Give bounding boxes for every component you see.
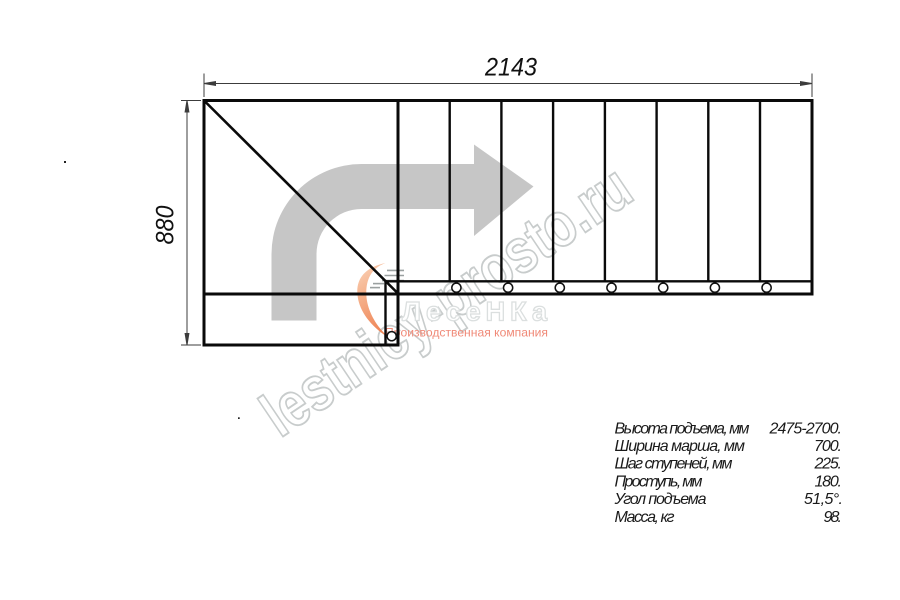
svg-text:98.: 98. [824, 509, 843, 526]
svg-text:880: 880 [152, 205, 180, 244]
svg-text:Производственная компания: Производственная компания [385, 326, 548, 340]
svg-text:2475-2700.: 2475-2700. [769, 420, 843, 437]
svg-text:180.: 180. [815, 473, 843, 490]
svg-text:Высота подъема, мм: Высота подъема, мм [615, 420, 750, 437]
svg-text:2143: 2143 [484, 54, 537, 82]
svg-text:Проступь, мм: Проступь, мм [615, 473, 703, 490]
svg-text:Шаг ступеней, мм: Шаг ступеней, мм [615, 456, 733, 473]
svg-text:225.: 225. [814, 456, 843, 473]
svg-text:Ширина марша, мм: Ширина марша, мм [615, 438, 746, 455]
svg-text:700.: 700. [814, 438, 842, 455]
svg-text:Угол подъема: Угол подъема [614, 491, 707, 508]
svg-text:Масса, кг: Масса, кг [615, 509, 675, 526]
svg-text:51,5°.: 51,5°. [804, 491, 843, 508]
